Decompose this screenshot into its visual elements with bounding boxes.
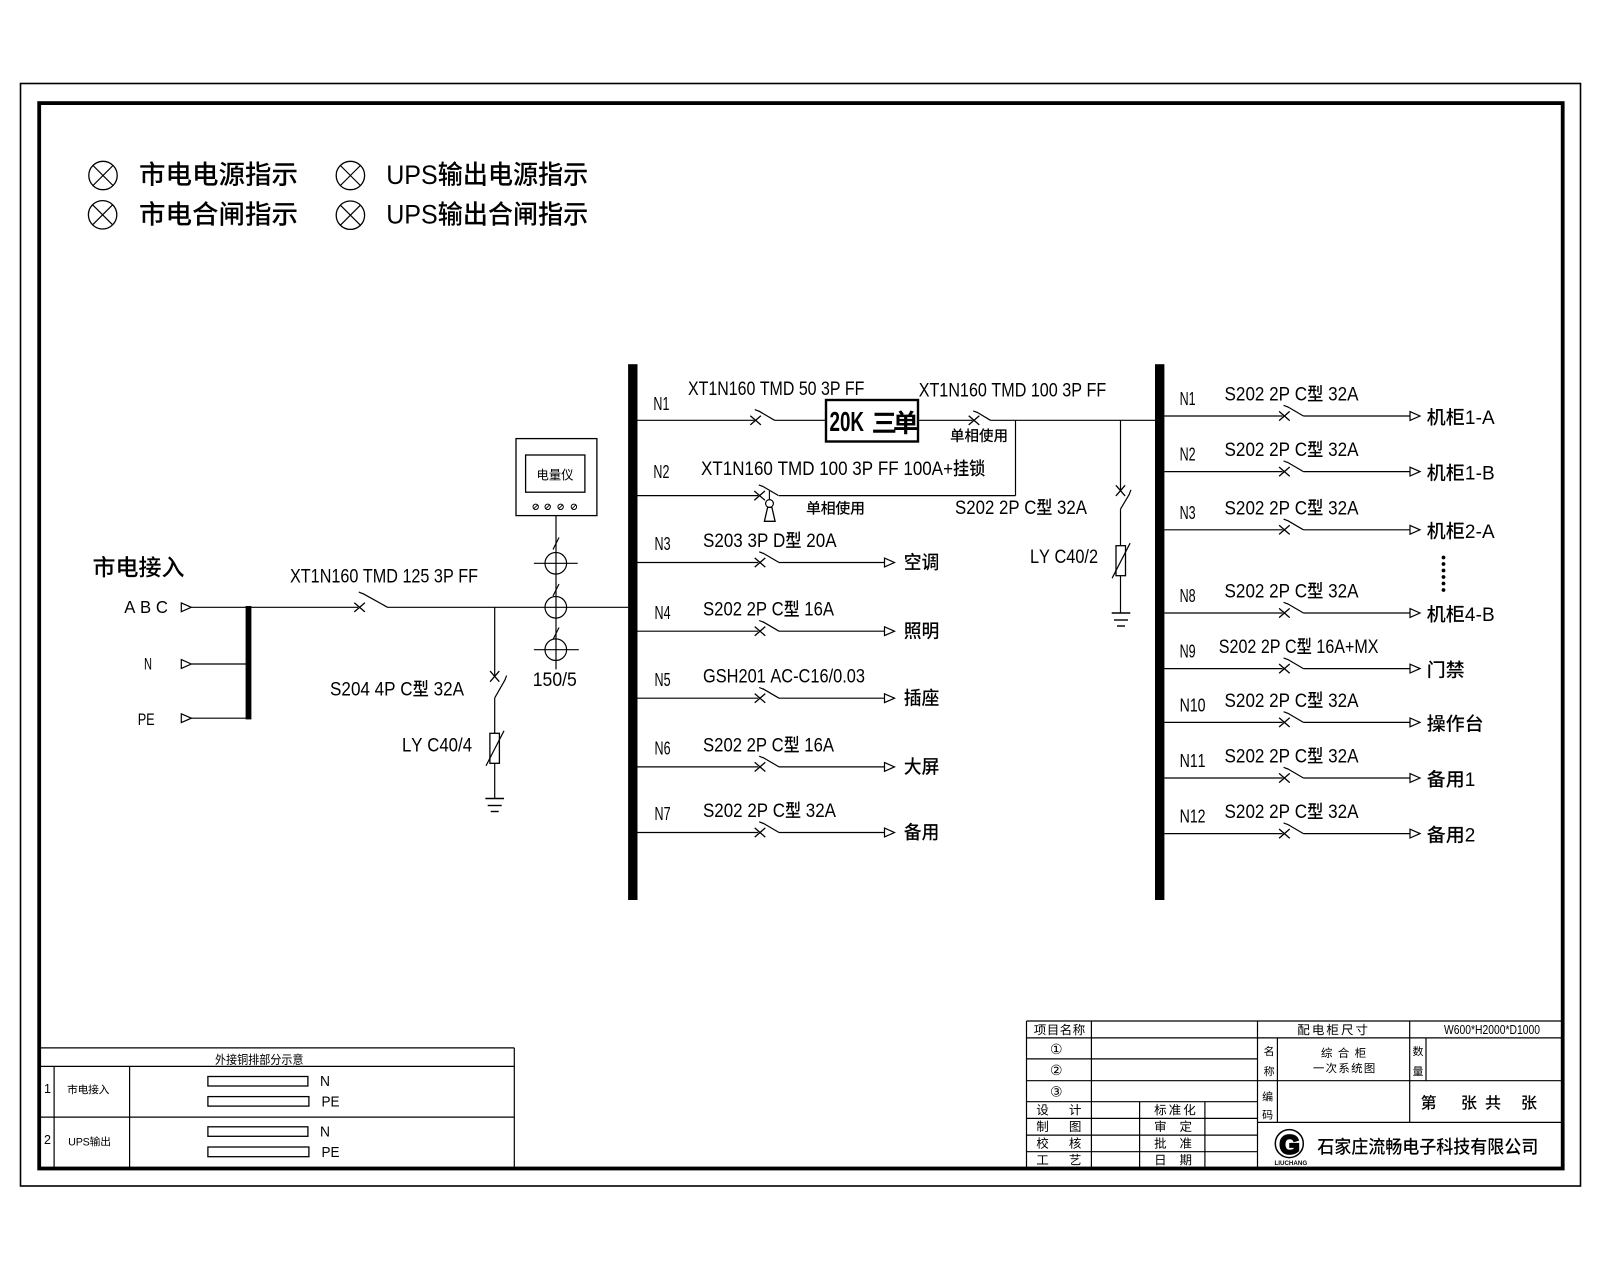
svg-text:N3: N3 [1180, 504, 1196, 524]
svg-text:PE: PE [322, 1144, 340, 1161]
svg-text:32A: 32A [1328, 496, 1359, 518]
svg-text:32A: 32A [1328, 579, 1359, 601]
svg-text:N4: N4 [655, 604, 671, 624]
svg-text:32A: 32A [1328, 689, 1359, 711]
svg-text:N5: N5 [655, 671, 671, 691]
svg-text:20A: 20A [806, 529, 837, 551]
svg-text:150/5: 150/5 [533, 668, 577, 690]
svg-text:②: ② [1050, 1062, 1063, 1078]
svg-text:N6: N6 [655, 739, 671, 759]
svg-text:N9: N9 [1180, 642, 1196, 662]
svg-text:XT1N160TMD1003PFF: XT1N160TMD1003PFF [919, 379, 1107, 401]
svg-text:W600*H2000*D1000: W600*H2000*D1000 [1444, 1024, 1540, 1037]
svg-text:2: 2 [1465, 826, 1476, 847]
svg-text:2: 2 [44, 1133, 51, 1147]
svg-text:LYC40/2: LYC40/2 [1030, 546, 1098, 568]
svg-text:N12: N12 [1180, 807, 1206, 827]
svg-text:32A: 32A [1328, 800, 1359, 822]
svg-text:LYC40/4: LYC40/4 [402, 734, 472, 755]
svg-text:N2: N2 [1180, 445, 1196, 465]
svg-text:N: N [320, 1074, 330, 1090]
svg-text:①: ① [1050, 1041, 1063, 1057]
svg-text:32A: 32A [1328, 382, 1359, 404]
svg-text:ABC: ABC [124, 597, 168, 616]
svg-text:32A: 32A [1328, 438, 1359, 460]
svg-text:XT1N160TMD1253PFF: XT1N160TMD1253PFF [290, 565, 478, 587]
svg-text:2-A: 2-A [1465, 522, 1495, 543]
svg-text:N8: N8 [1180, 587, 1196, 607]
svg-text:XT1N160TMD1003PFF100A+: XT1N160TMD1003PFF100A+ [701, 457, 953, 479]
svg-text:4-B: 4-B [1465, 605, 1495, 626]
svg-text:G: G [1280, 1130, 1300, 1160]
svg-text:1: 1 [44, 1082, 51, 1096]
svg-text:16A+MX: 16A+MX [1316, 636, 1378, 658]
svg-text:16A: 16A [804, 599, 835, 620]
svg-text:32A: 32A [1057, 497, 1088, 518]
svg-text:32A: 32A [1328, 744, 1359, 766]
svg-text:GSH201AC-C16/0.03: GSH201AC-C16/0.03 [703, 665, 865, 687]
svg-text:1-B: 1-B [1465, 464, 1495, 485]
svg-text:1: 1 [1465, 770, 1476, 791]
svg-text:XT1N160TMD503PFF: XT1N160TMD503PFF [688, 377, 864, 399]
svg-text:③: ③ [1050, 1083, 1063, 1099]
svg-text:20K: 20K [830, 406, 865, 438]
svg-text:N1: N1 [1180, 390, 1196, 410]
svg-text:N3: N3 [655, 535, 671, 555]
svg-text:UPS: UPS [386, 161, 438, 190]
svg-text:N: N [320, 1124, 330, 1140]
svg-text:PE: PE [322, 1093, 340, 1110]
svg-text:N10: N10 [1180, 696, 1206, 716]
svg-text:N7: N7 [655, 805, 671, 825]
svg-text:N: N [144, 655, 152, 674]
svg-text:32A: 32A [434, 677, 465, 699]
svg-text:1-A: 1-A [1465, 408, 1495, 429]
svg-text:N1: N1 [653, 395, 669, 415]
svg-text:UPS: UPS [386, 201, 438, 230]
svg-text:UPS: UPS [68, 1136, 90, 1148]
svg-text:N2: N2 [653, 463, 669, 483]
svg-text:N11: N11 [1180, 751, 1206, 771]
svg-text:PE: PE [138, 710, 155, 729]
svg-text:16A: 16A [804, 734, 835, 755]
svg-text:LIUCHANG: LIUCHANG [1275, 1160, 1308, 1167]
svg-text:32A: 32A [806, 799, 837, 821]
